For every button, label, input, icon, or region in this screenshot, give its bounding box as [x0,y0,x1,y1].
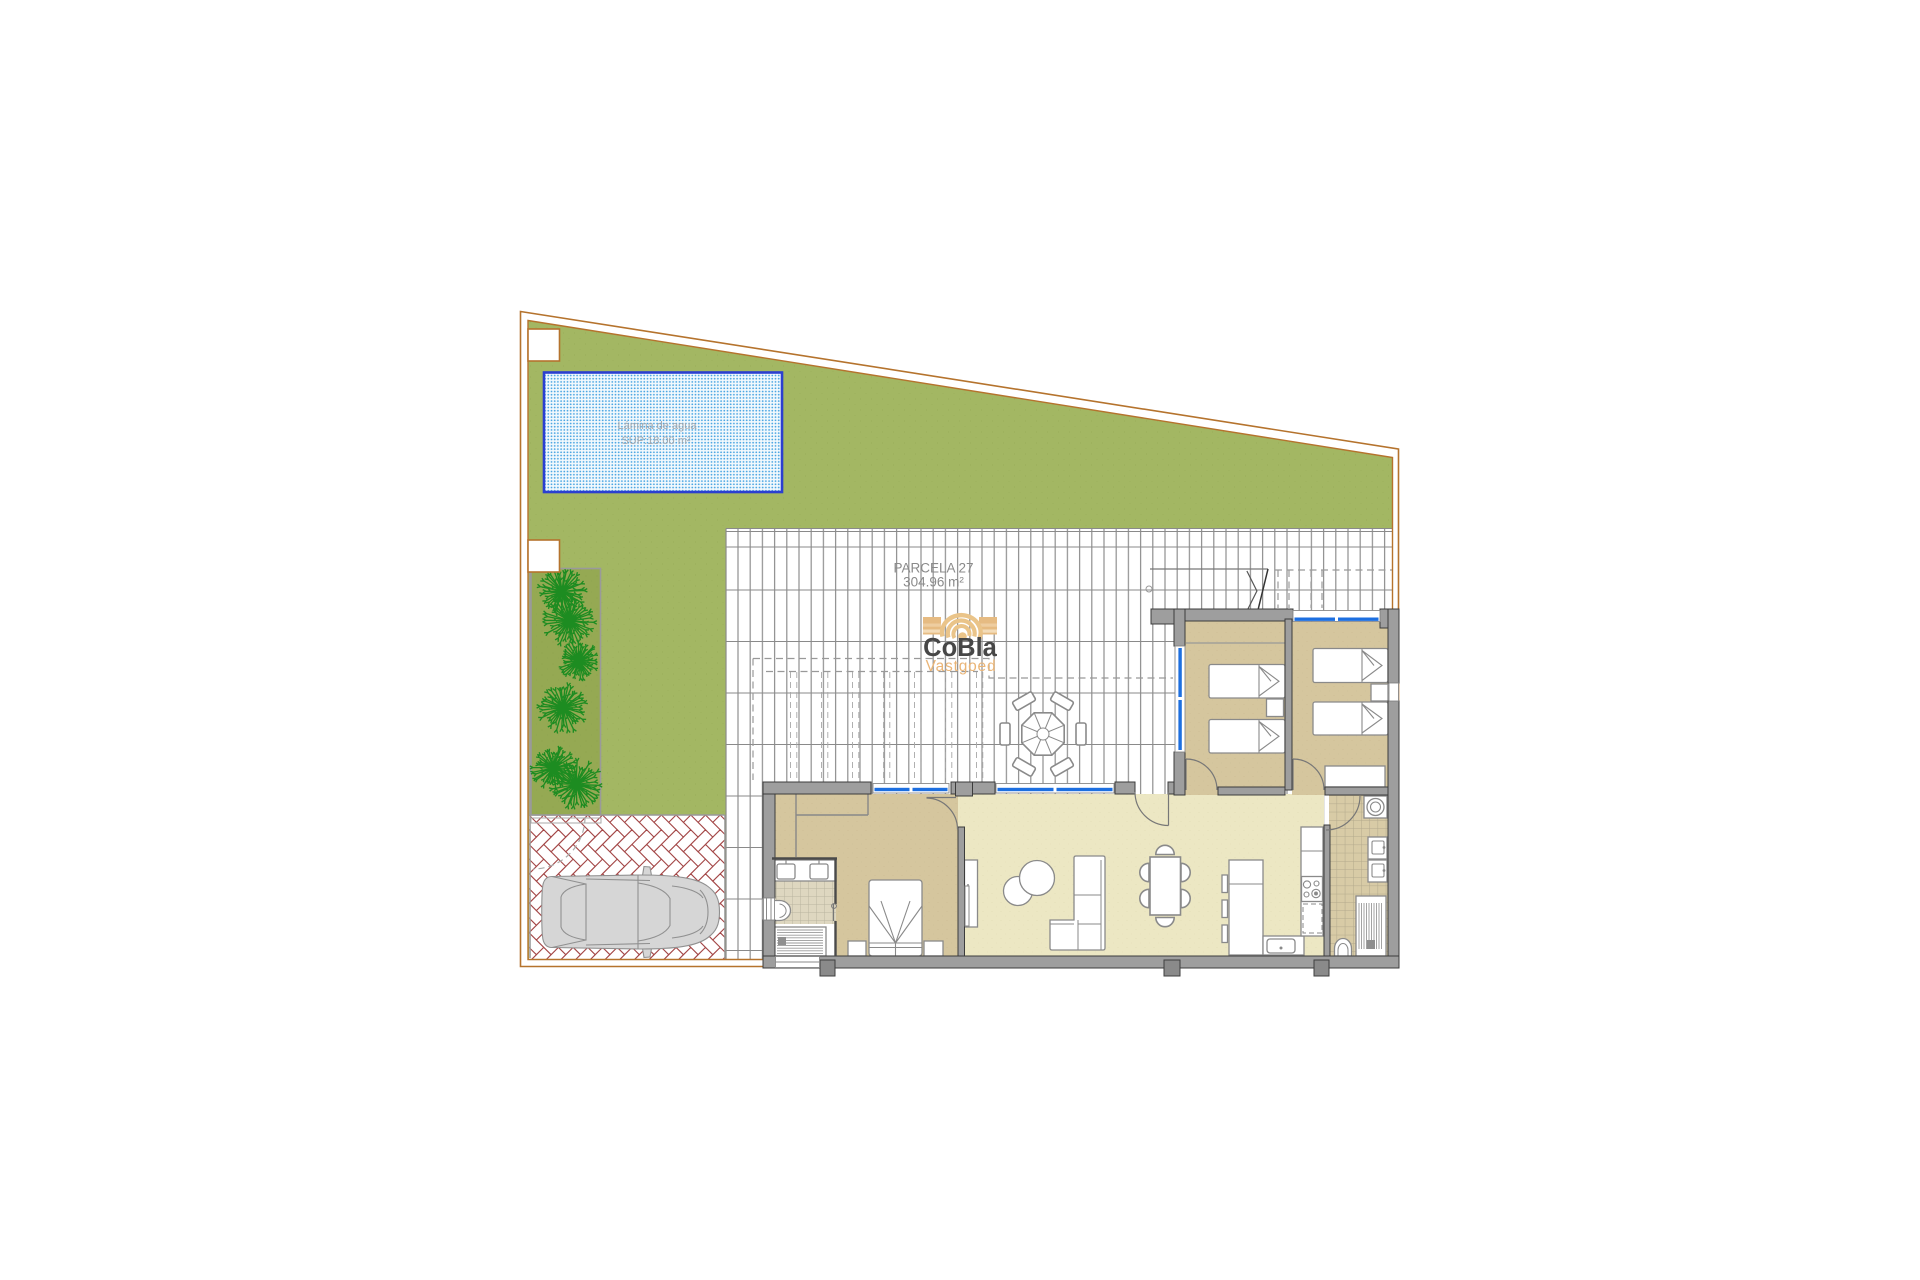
svg-text:Lámina de agua: Lámina de agua [618,420,698,432]
svg-text:Vastgoed: Vastgoed [926,658,997,675]
svg-text:PARCELA 27: PARCELA 27 [893,561,973,576]
svg-text:SUP:18.00 m²: SUP:18.00 m² [621,435,690,447]
svg-text:304.96 m²: 304.96 m² [903,575,964,590]
